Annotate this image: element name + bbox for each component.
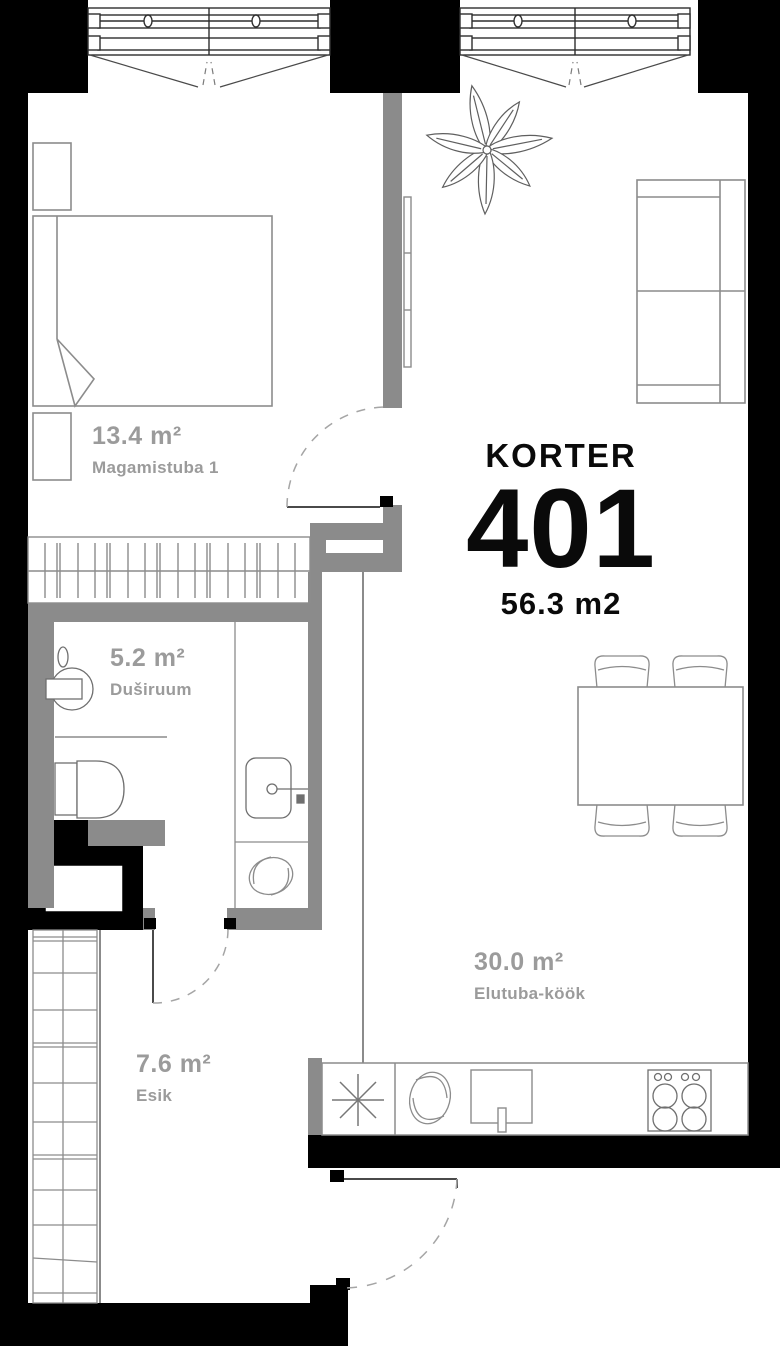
- tv: [404, 197, 411, 367]
- room-label-hallway: 7.6 m² Esik: [136, 1052, 211, 1104]
- nightstand-bottom: [33, 413, 71, 480]
- room-area: 30.0 m²: [474, 950, 585, 975]
- room-name: Elutuba-köök: [474, 985, 585, 1002]
- apartment-number: 401: [421, 477, 701, 580]
- floor-plan: KORTER 401 56.3 m2 13.4 m² Magamistuba 1…: [0, 0, 780, 1346]
- bed: [33, 216, 272, 406]
- room-label-bathroom: 5.2 m² Duširuum: [110, 646, 192, 698]
- interior-walls: [28, 93, 402, 1135]
- door-bathroom: [144, 918, 236, 1003]
- duct-slot: [326, 540, 383, 553]
- apartment-total-area: 56.3 m2: [421, 586, 701, 622]
- nightstand-top: [33, 143, 71, 210]
- table-top: [578, 687, 743, 805]
- chair: [595, 804, 649, 836]
- apartment-title: KORTER 401 56.3 m2: [421, 437, 701, 622]
- room-label-living-kitchen: 30.0 m² Elutuba-köök: [474, 950, 585, 1002]
- chair: [673, 656, 727, 688]
- window-living: [460, 8, 690, 87]
- room-area: 13.4 m²: [92, 424, 219, 449]
- room-name: Esik: [136, 1087, 211, 1104]
- window-bedroom: [88, 8, 330, 87]
- room-name: Magamistuba 1: [92, 459, 219, 476]
- room-area: 5.2 m²: [110, 646, 192, 671]
- wall-niche: [45, 865, 123, 912]
- washbasin: [246, 758, 308, 818]
- washing-machine: [235, 842, 308, 900]
- door-entry: [330, 1170, 457, 1290]
- room-name: Duširuum: [110, 681, 192, 698]
- wardrobe-shelves: [33, 930, 97, 1303]
- room-label-bedroom: 13.4 m² Magamistuba 1: [92, 424, 219, 476]
- dining-table: [578, 656, 743, 836]
- chair: [595, 656, 649, 688]
- toilet: [55, 761, 124, 818]
- door-bedroom: [287, 407, 393, 507]
- plant: [425, 84, 553, 214]
- chair: [673, 804, 727, 836]
- room-area: 7.6 m²: [136, 1052, 211, 1077]
- closet-rail: [28, 537, 310, 603]
- sofa: [637, 180, 745, 403]
